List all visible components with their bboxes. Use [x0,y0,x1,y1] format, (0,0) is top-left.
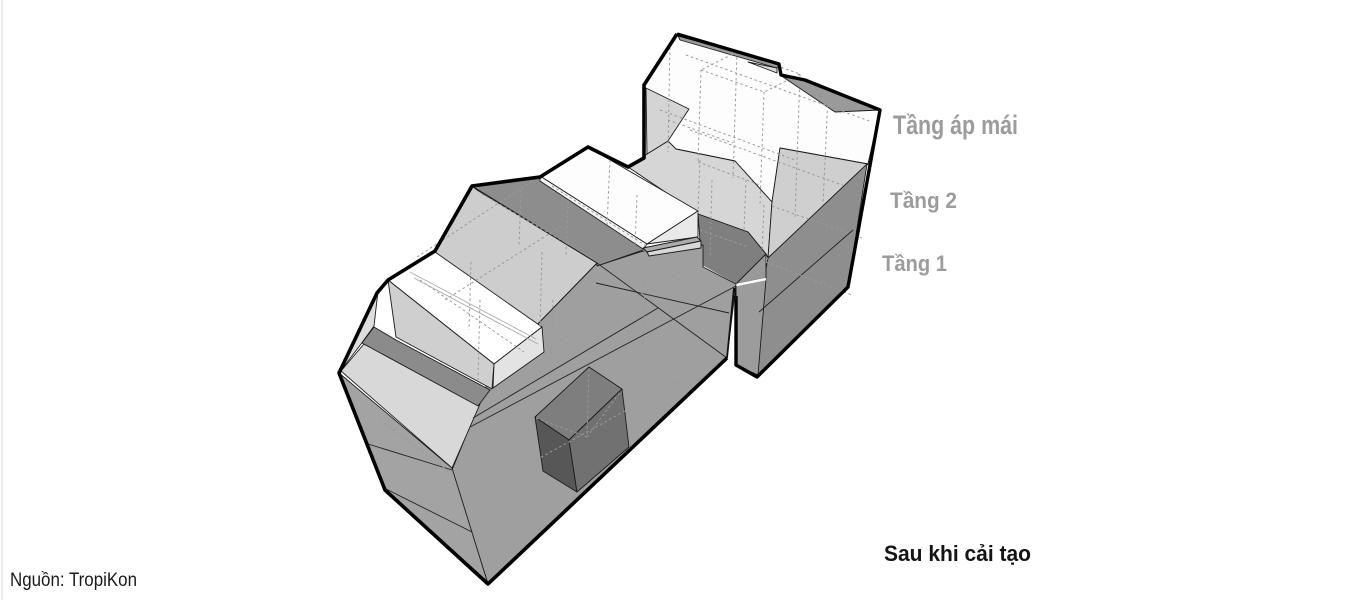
svg-text:Tầng áp mái: Tầng áp mái [893,110,1018,140]
svg-text:Tầng 1: Tầng 1 [882,251,947,276]
svg-text:Tầng 2: Tầng 2 [890,188,957,213]
svg-text:Sau khi cải tạo: Sau khi cải tạo [884,541,1031,566]
svg-text:Nguồn: TropiKon: Nguồn: TropiKon [10,570,137,591]
